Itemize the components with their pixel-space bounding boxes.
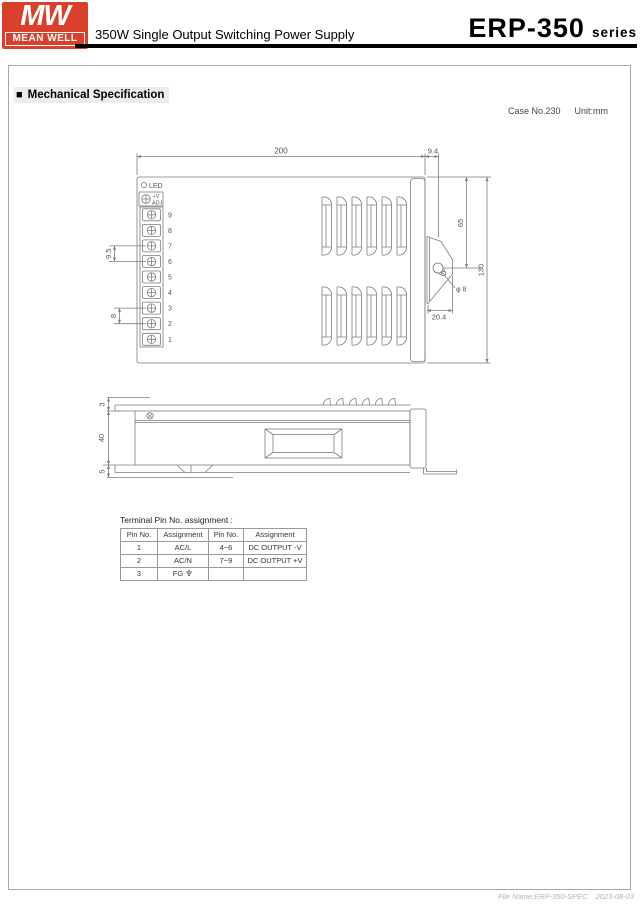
table-row: 3 FG [121, 568, 307, 581]
top-view-dimensions: 200 9.4 65 130 φ 8 20.4 9.5 8 [104, 147, 491, 364]
logo-mw-text: MW [2, 2, 88, 32]
pin-numbers: 9 8 7 6 5 4 3 2 1 [168, 212, 172, 343]
svg-text:4: 4 [168, 290, 172, 297]
side-view: 3 40 5 [97, 398, 457, 478]
dim-body-height-label: 40 [97, 434, 106, 442]
voltage-adjust-pot-icon [142, 195, 151, 204]
series-suffix: series [592, 25, 637, 40]
col-header-pin-no-1: Pin No. [121, 529, 158, 542]
pin-assignment-section: Terminal Pin No. assignment : Pin No. As… [120, 515, 307, 581]
svg-text:3: 3 [168, 306, 172, 313]
col-header-assignment-2: Assignment [244, 529, 307, 542]
footer: File Name:ERP-350-SPEC 2023-08-03 [498, 892, 634, 901]
svg-text:5: 5 [168, 275, 172, 282]
dim-hole-to-top-label: 65 [456, 219, 465, 227]
label-recess [265, 429, 342, 458]
earth-ground-icon [185, 569, 193, 577]
dim-cover-lip-label: 3 [98, 402, 107, 406]
doc-title: 350W Single Output Switching Power Suppl… [95, 27, 354, 42]
footer-date: 2023-08-03 [596, 892, 634, 901]
svg-text:2: 2 [168, 321, 172, 328]
svg-text:1: 1 [168, 337, 172, 344]
dim-pin-pitch-dc-label: 9.5 [104, 248, 113, 258]
mechanical-drawing: LED +V ADJ 9 8 7 6 5 4 3 [8, 65, 631, 890]
led-indicator-icon [141, 182, 146, 187]
bottom-foot [177, 465, 213, 473]
side-view-dimensions: 3 40 5 [97, 398, 150, 478]
svg-text:7: 7 [168, 243, 172, 250]
footer-file-name: File Name:ERP-350-SPEC [498, 892, 588, 901]
terminal-strip [140, 207, 163, 347]
dim-hole-dia-label: φ 8 [456, 287, 466, 294]
vent-louvers [322, 197, 407, 345]
led-label: LED [149, 183, 163, 190]
side-end-plate [410, 409, 426, 468]
logo-brand-text: MEAN WELL [5, 32, 85, 47]
table-row: 2 AC/N 7~9 DC OUTPUT +V [121, 555, 307, 568]
header-rule [75, 44, 637, 48]
col-header-assignment-1: Assignment [158, 529, 209, 542]
top-view: LED +V ADJ 9 8 7 6 5 4 3 [104, 147, 491, 364]
dim-foot-height-label: 5 [98, 469, 107, 473]
dim-width-label: 200 [274, 147, 288, 156]
mounting-bracket [427, 237, 453, 304]
pin-table-title: Terminal Pin No. assignment : [120, 515, 307, 525]
dim-bracket-offset-label: 9.4 [428, 147, 438, 156]
pin-table: Pin No. Assignment Pin No. Assignment 1 … [120, 528, 307, 581]
bracket-foot [424, 468, 457, 474]
series-name: ERP-350 [468, 13, 585, 44]
adj-label-adj: ADJ [152, 201, 163, 207]
adj-label-v: +V [153, 194, 160, 200]
side-louver-fins [323, 399, 396, 406]
pin-table-header-row: Pin No. Assignment Pin No. Assignment [121, 529, 307, 542]
svg-text:8: 8 [168, 228, 172, 235]
dim-pin-pitch-ac-label: 8 [109, 314, 118, 318]
dim-height-label: 130 [477, 264, 486, 277]
svg-text:6: 6 [168, 259, 172, 266]
table-row: 1 AC/L 4~6 DC OUTPUT -V [121, 542, 307, 555]
cover-screw-icon [147, 413, 153, 419]
svg-text:9: 9 [168, 212, 172, 219]
series-title: ERP-350 series [468, 13, 637, 44]
meanwell-logo: MW MEAN WELL [2, 2, 88, 49]
col-header-pin-no-2: Pin No. [209, 529, 244, 542]
dim-bracket-width-label: 20.4 [432, 313, 447, 322]
